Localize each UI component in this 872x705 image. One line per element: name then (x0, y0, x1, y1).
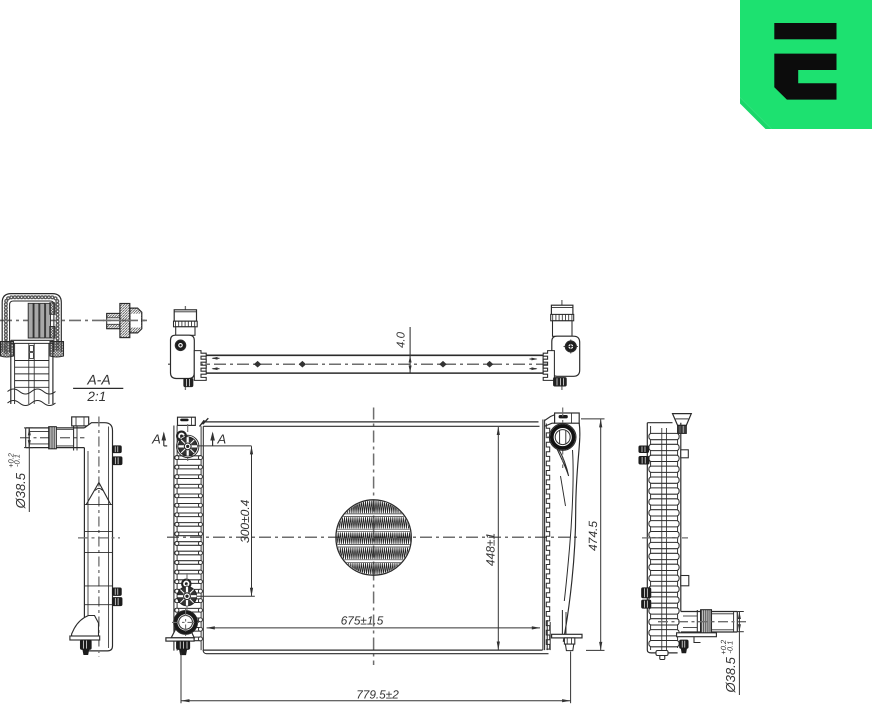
svg-text:A-A: A-A (86, 371, 110, 387)
svg-text:Ø38.5: Ø38.5 (13, 472, 28, 509)
svg-text:675±1.5: 675±1.5 (341, 614, 384, 628)
svg-text:A: A (151, 431, 161, 446)
svg-text:A: A (216, 431, 226, 446)
svg-text:779.5±2: 779.5±2 (356, 688, 399, 702)
svg-text:474.5: 474.5 (586, 521, 600, 551)
svg-text:448±1: 448±1 (484, 533, 498, 566)
svg-text:-0.1: -0.1 (13, 454, 22, 467)
svg-text:Ø38.5: Ø38.5 (723, 656, 738, 693)
svg-text:2:1: 2:1 (86, 389, 106, 404)
svg-text:300±0.4: 300±0.4 (238, 499, 252, 543)
svg-text:4.0: 4.0 (396, 331, 408, 348)
svg-text:-0.1: -0.1 (725, 641, 734, 654)
